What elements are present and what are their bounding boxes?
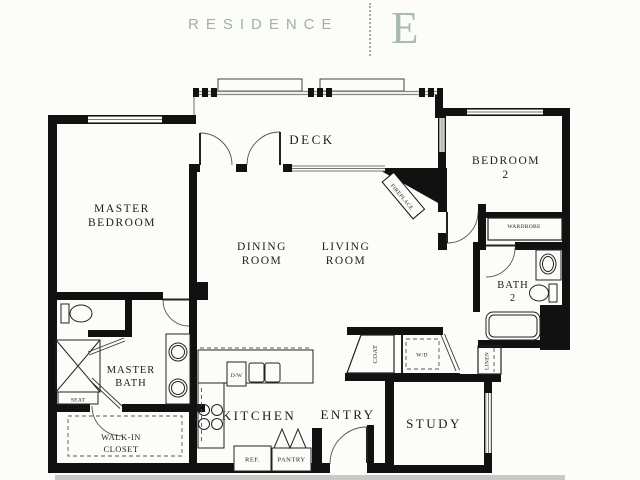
kitchen-label: KITCHEN [222,408,297,423]
kitchen-sink-left [249,363,264,382]
bath2-toilet-bowl [530,285,549,301]
bath2-toilet-tank [549,284,557,302]
bath2-label-2: 2 [510,293,516,304]
floor-plan-page: RESIDENCE E [0,0,640,480]
dining-room-label-1: DINING [237,241,287,253]
walk-in-closet-label-2: CLOSET [103,444,138,454]
seat-label: SEAT [71,398,86,404]
refrigerator-label: REF. [245,457,260,464]
dishwasher-label: D/W [231,373,243,379]
pantry-label: PANTRY [277,457,305,464]
master-bedroom-label-1: MASTER [94,203,150,215]
fixture-labels: WARDROBE SEAT D/W REF. PANTRY COAT W/D L… [71,224,541,464]
kitchen-sink-right [265,363,280,382]
entry-label: ENTRY [320,407,375,422]
shower [56,340,100,392]
stove-burner-3 [199,419,210,430]
master-bath-label-2: BATH [115,378,146,389]
master-bath-label-1: MASTER [107,365,156,376]
pantry-bifold-doors [274,429,306,448]
bath2-label-1: BATH [497,280,528,291]
washer-dryer-label: W/D [416,353,428,359]
dining-room-label-2: ROOM [242,255,283,267]
coat-closet [347,335,394,373]
coat-label: COAT [372,345,379,364]
toilet-bowl [70,305,92,322]
living-room-label-2: ROOM [326,255,367,267]
master-bath-fixtures [56,304,190,404]
living-room-label-1: LIVING [322,241,371,253]
bedroom2-label-2: 2 [502,169,509,181]
linen-label: LINEN [485,352,491,370]
master-bedroom-label-2: BEDROOM [88,217,156,229]
floor-plan-drawing: FIREPLACE DECK MASTER BEDROOM DINING ROO… [0,0,640,480]
wardrobe-label: WARDROBE [507,224,541,230]
deck-label: DECK [289,132,334,147]
toilet-tank [61,304,69,323]
plan-shadow-bar [55,475,565,480]
bedroom2-label-1: BEDROOM [472,155,540,167]
bathtub [486,312,540,340]
vanity [166,334,190,404]
study-label: STUDY [406,416,462,431]
walk-in-closet-label-1: WALK-IN [101,432,141,442]
